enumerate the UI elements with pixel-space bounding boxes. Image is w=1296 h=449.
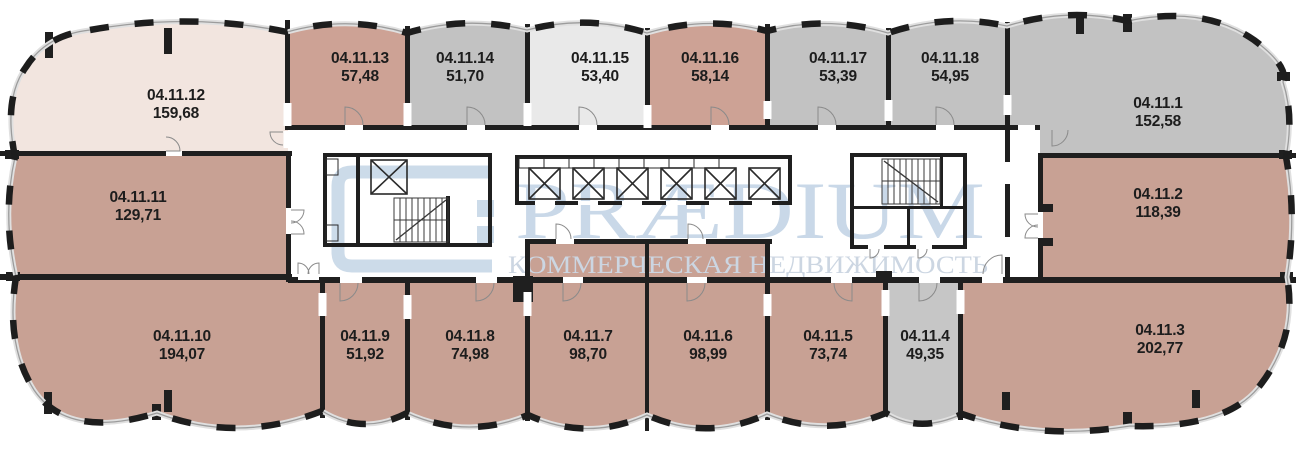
room-04.11.16[interactable] [645,0,769,130]
floor-plan-canvas: PRÆDIUM КОММЕРЧЕСКАЯ НЕДВИЖИМОСТЬ [0,0,1296,449]
room-04.11.1[interactable] [1005,0,1296,159]
room-04.11.17[interactable] [765,0,890,130]
room-04.11.7[interactable] [526,241,649,449]
room-04.11.13[interactable] [285,0,409,130]
floor-plan-svg: PRÆDIUM КОММЕРЧЕСКАЯ НЕДВИЖИМОСТЬ [0,0,1296,449]
room-04.11.11[interactable] [0,153,290,280]
room-04.11.2[interactable] [1038,155,1296,282]
